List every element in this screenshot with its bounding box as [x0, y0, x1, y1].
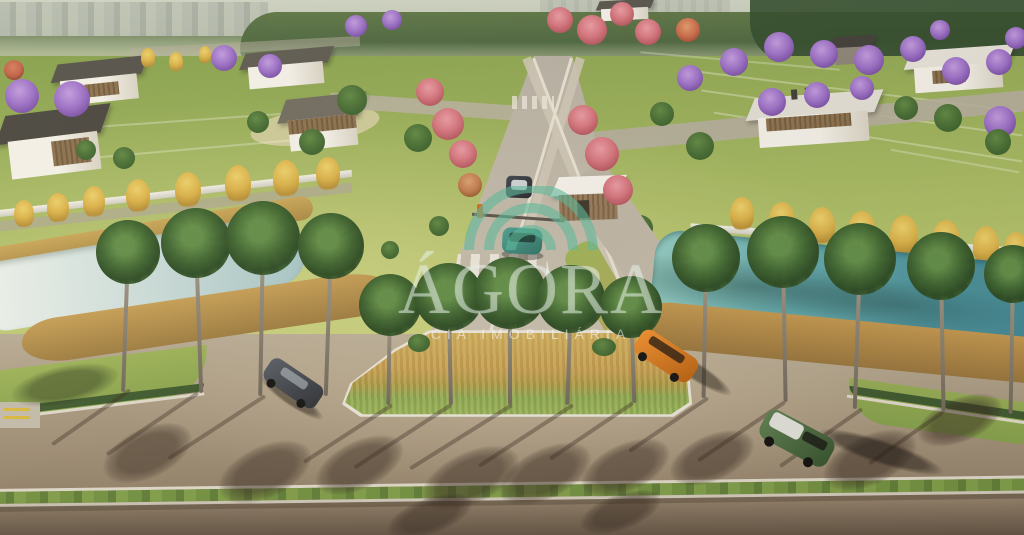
warm-light-tint [0, 0, 1024, 535]
aerial-render-scene: ÁGORA CIA IMOBILIÁRIA [0, 0, 1024, 535]
